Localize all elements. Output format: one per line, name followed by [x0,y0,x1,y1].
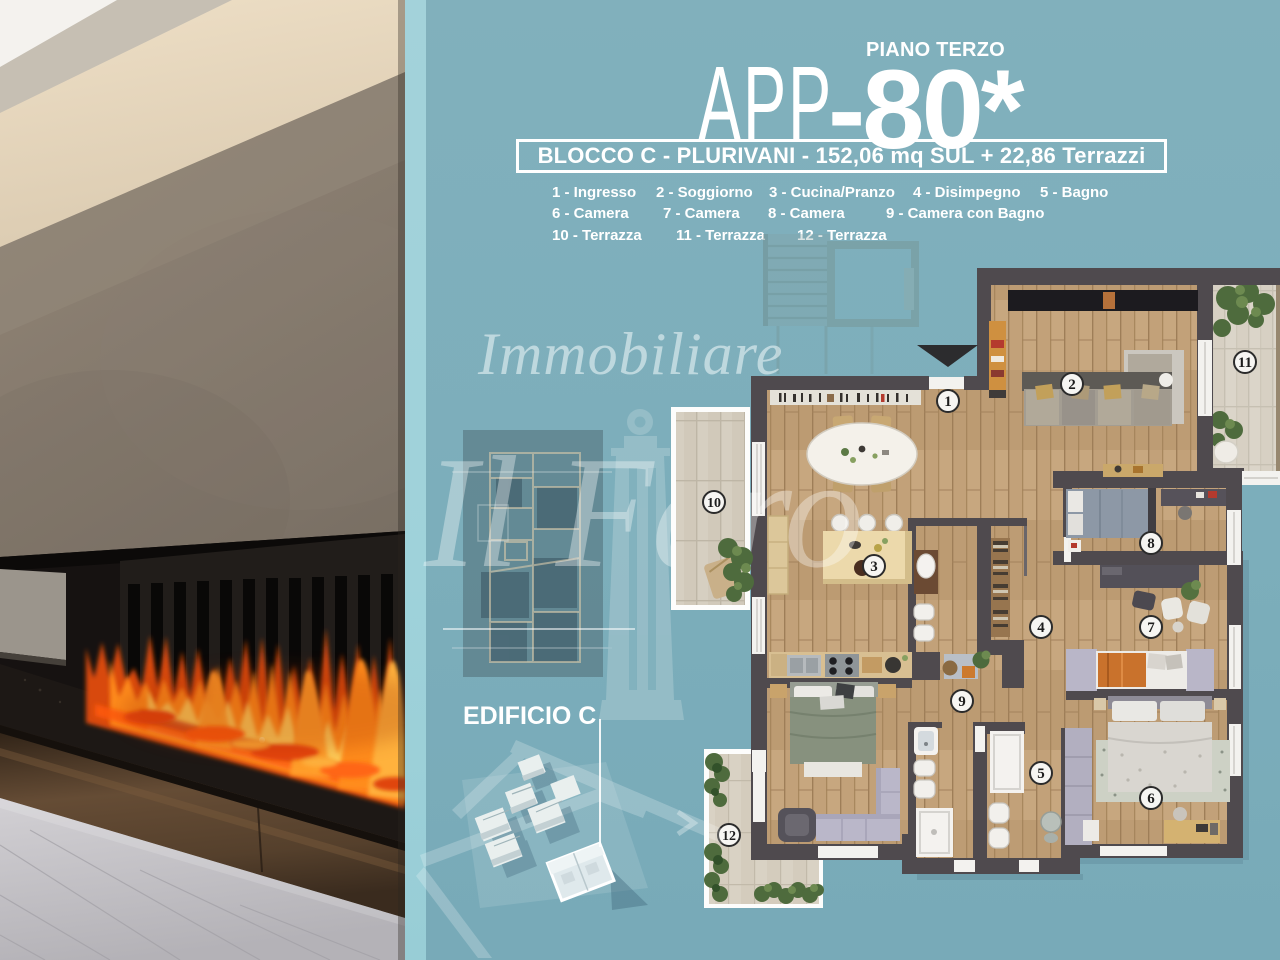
svg-text:6: 6 [1147,791,1155,807]
svg-text:5: 5 [1037,766,1045,782]
svg-text:4: 4 [1037,620,1045,636]
svg-text:9: 9 [958,694,966,710]
svg-text:8: 8 [1147,536,1155,552]
svg-text:3: 3 [870,559,878,575]
svg-text:10: 10 [707,496,721,511]
svg-text:2: 2 [1068,377,1076,393]
svg-text:1: 1 [944,394,952,410]
svg-text:11: 11 [1238,355,1252,371]
svg-text:7: 7 [1147,620,1155,636]
